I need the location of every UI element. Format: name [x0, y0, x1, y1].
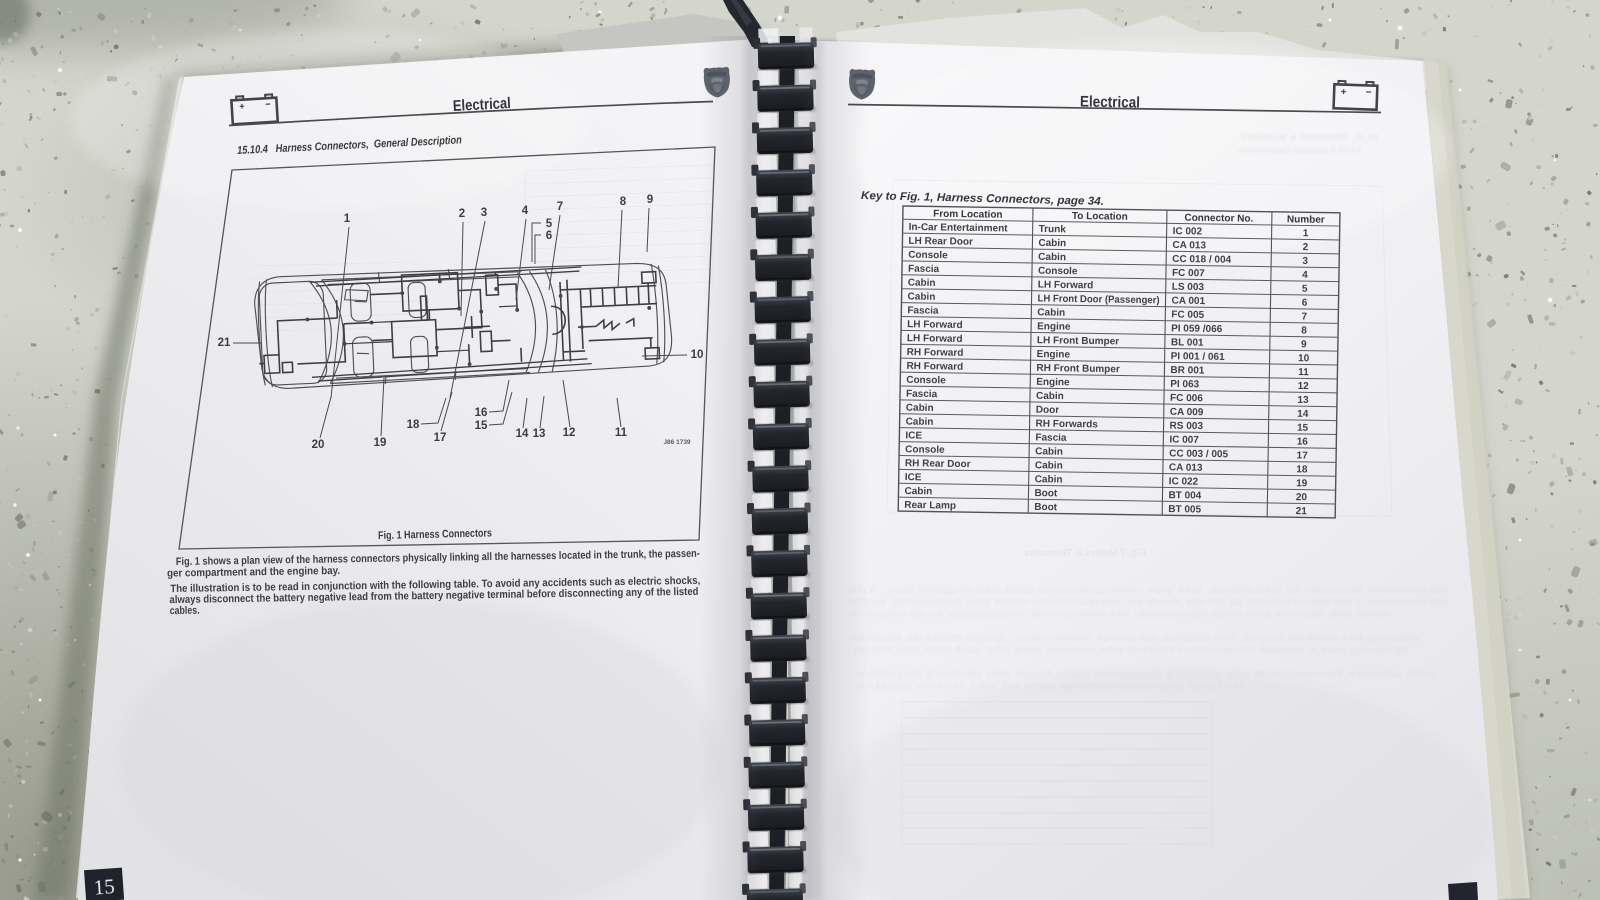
svg-text:Cabin: Cabin	[1037, 307, 1065, 318]
svg-text:13: 13	[1297, 395, 1309, 406]
svg-text:4: 4	[522, 205, 529, 217]
svg-text:15: 15	[93, 874, 116, 899]
svg-text:15: 15	[475, 420, 488, 432]
svg-text:Door: Door	[1036, 405, 1060, 416]
svg-text:Fig. 7 Meters & Telemetes: Fig. 7 Meters & Telemetes	[1024, 548, 1147, 559]
svg-text:5: 5	[1302, 284, 1308, 295]
svg-text:Boot: Boot	[1034, 488, 1058, 499]
svg-text:Cabin: Cabin	[1035, 460, 1063, 471]
svg-text:16: 16	[1297, 437, 1309, 448]
svg-text:BT 005: BT 005	[1168, 504, 1201, 516]
svg-text:18: 18	[1296, 464, 1308, 475]
svg-text:6: 6	[1302, 298, 1308, 309]
svg-text:IC 007: IC 007	[1169, 435, 1199, 446]
svg-text:10: 10	[1298, 353, 1310, 364]
svg-text:ICE: ICE	[905, 430, 922, 441]
svg-text:Fascia: Fascia	[908, 264, 940, 275]
svg-text:Trunk: Trunk	[1039, 224, 1067, 235]
svg-text:1: 1	[1303, 228, 1309, 239]
svg-text:9: 9	[1301, 339, 1307, 350]
svg-text:9: 9	[647, 194, 653, 206]
svg-text:PI 001 / 061: PI 001 / 061	[1171, 351, 1226, 363]
svg-text:CC 018 / 004: CC 018 / 004	[1172, 254, 1232, 266]
svg-text:RH Rear Door: RH Rear Door	[905, 458, 971, 470]
svg-text:FC 007: FC 007	[1172, 268, 1205, 280]
svg-text:LH Rear Door: LH Rear Door	[908, 236, 973, 248]
svg-text:CA 009: CA 009	[1170, 407, 1204, 419]
svg-text:To Location: To Location	[1072, 211, 1128, 223]
svg-text:Console: Console	[1038, 266, 1078, 278]
svg-text:FC 005: FC 005	[1171, 309, 1204, 321]
svg-text:BR 001: BR 001	[1170, 365, 1205, 377]
svg-text:elbat gniwollof eht htiw noitc: elbat gniwollof eht htiw noitcnujnoc ni …	[848, 597, 1448, 608]
svg-text:IC 022: IC 022	[1169, 476, 1199, 487]
svg-text:Cabin: Cabin	[1036, 391, 1064, 402]
svg-text:12: 12	[563, 427, 576, 439]
svg-text:Cabin: Cabin	[908, 277, 936, 288]
svg-text:4: 4	[1302, 270, 1308, 281]
svg-text:RS 003: RS 003	[1169, 421, 1203, 433]
svg-text:BT 004: BT 004	[1168, 490, 1201, 502]
svg-text:evitagen yrettab eht morf dael: evitagen yrettab eht morf dael evitagen …	[855, 669, 1436, 680]
svg-text:Boot: Boot	[1034, 502, 1058, 513]
svg-text:LH Forward: LH Forward	[907, 319, 963, 331]
svg-text:CA 001: CA 001	[1171, 296, 1205, 308]
svg-text:17: 17	[434, 432, 447, 444]
svg-text:21: 21	[1296, 506, 1308, 517]
svg-text:Connector No.: Connector No.	[1184, 213, 1253, 225]
svg-text:14.41.1 General Description: 14.41.1 General Description	[1238, 145, 1363, 156]
svg-text:cables.: cables.	[170, 605, 200, 617]
svg-text:LH Front Bumper: LH Front Bumper	[1037, 335, 1119, 347]
svg-text:Fascia: Fascia	[1035, 432, 1067, 443]
svg-text:RH Front Bumper: RH Front Bumper	[1036, 363, 1120, 375]
svg-text:Console: Console	[905, 444, 945, 456]
svg-text:RH Forwards: RH Forwards	[1036, 419, 1099, 431]
svg-text:11: 11	[1298, 367, 1309, 378]
svg-text:8: 8	[620, 196, 627, 208]
svg-text:8: 8	[1301, 325, 1307, 336]
svg-text:13: 13	[533, 428, 546, 440]
svg-text:6: 6	[546, 230, 552, 242]
svg-text:Cabin: Cabin	[1035, 474, 1063, 485]
svg-text:ICE: ICE	[905, 472, 922, 483]
svg-text:Cabin: Cabin	[1038, 238, 1066, 249]
svg-text:Cabin: Cabin	[907, 291, 935, 302]
svg-text:14: 14	[1297, 409, 1309, 420]
svg-text:17: 17	[1296, 450, 1308, 461]
svg-text:Cabin: Cabin	[1035, 446, 1063, 457]
svg-text:In-Car Entertainment: In-Car Entertainment	[909, 222, 1009, 235]
svg-text:12: 12	[1298, 381, 1310, 392]
svg-text:CA 013: CA 013	[1169, 462, 1203, 474]
svg-text:19: 19	[1296, 478, 1308, 489]
svg-text:RH Forward: RH Forward	[906, 361, 963, 373]
svg-text:7: 7	[1301, 311, 1307, 322]
svg-text:19: 19	[374, 437, 387, 449]
svg-text:IC 002: IC 002	[1173, 226, 1203, 237]
svg-text:14.41 WINDOWS & SCREENS: 14.41 WINDOWS & SCREENS	[1241, 132, 1379, 143]
svg-text:BL 001: BL 001	[1171, 337, 1204, 349]
svg-text:gnurt eht dna bac eht yab enig: gnurt eht dna bac eht yab enigne eht tra…	[853, 645, 1409, 656]
svg-text:Engine: Engine	[1036, 377, 1070, 389]
svg-text:2: 2	[459, 208, 465, 220]
svg-text:Cabin: Cabin	[904, 486, 932, 497]
svg-text:From Location: From Location	[933, 209, 1003, 221]
svg-text:Console: Console	[906, 375, 946, 387]
svg-text:21: 21	[218, 337, 231, 349]
svg-text:Fascia: Fascia	[906, 389, 938, 400]
svg-text:CC 003 / 005: CC 003 / 005	[1169, 448, 1229, 460]
svg-text:Cabin: Cabin	[906, 416, 934, 427]
svg-text:7: 7	[557, 201, 563, 213]
svg-text:5: 5	[546, 218, 553, 230]
svg-text:CA 013: CA 013	[1172, 240, 1206, 252]
svg-text:3: 3	[481, 207, 487, 219]
svg-text:ehT .yab enigne eht dna tnemt: ehT .yab enigne eht dna tnemtrapmoc reg …	[848, 585, 1448, 596]
svg-text:20: 20	[312, 439, 325, 451]
svg-text:Rear Lamp: Rear Lamp	[904, 500, 956, 512]
svg-text:PI 063: PI 063	[1170, 379, 1200, 390]
svg-text:Cabin: Cabin	[1038, 252, 1066, 263]
svg-text:20: 20	[1296, 492, 1308, 503]
svg-text:Cabin: Cabin	[906, 403, 934, 414]
svg-text:18: 18	[407, 419, 420, 431]
svg-text:15: 15	[1297, 423, 1309, 434]
svg-text:FC 006: FC 006	[1170, 393, 1203, 405]
svg-text:2: 2	[1303, 242, 1309, 253]
svg-text:Engine: Engine	[1037, 349, 1071, 361]
svg-text:1: 1	[344, 213, 351, 225]
svg-text:LH Front Door (Passenger): LH Front Door (Passenger)	[1037, 293, 1159, 306]
svg-text:11: 11	[615, 427, 628, 439]
svg-text:10: 10	[691, 349, 704, 361]
svg-text:Number: Number	[1287, 214, 1325, 226]
svg-text:PI 059 /066: PI 059 /066	[1171, 323, 1223, 335]
svg-text:Engine: Engine	[1037, 321, 1071, 333]
svg-text:desopxe eb ot snoitcennoc decn: desopxe eb ot snoitcennoc decnuonna eht …	[850, 609, 1391, 620]
svg-text:selbac detsil eht fo yna gnitc: selbac detsil eht fo yna gnitcennocsid e…	[855, 681, 1245, 692]
svg-text:RH Forward: RH Forward	[907, 347, 964, 359]
svg-text:3: 3	[1302, 256, 1308, 267]
svg-text:J86 1739: J86 1739	[663, 439, 690, 446]
svg-text:LH Forward: LH Forward	[1038, 280, 1094, 292]
svg-text:detacol eb tsum sgulp ,srotcen: detacol eb tsum sgulp ,srotcennoc toovs …	[850, 633, 1420, 644]
svg-text:Console: Console	[908, 250, 948, 262]
svg-text:Fascia: Fascia	[907, 305, 939, 316]
svg-text:16: 16	[475, 407, 488, 419]
svg-text:14: 14	[516, 428, 529, 440]
svg-text:LH Forward: LH Forward	[907, 333, 963, 345]
svg-text:LS 003: LS 003	[1172, 282, 1205, 294]
